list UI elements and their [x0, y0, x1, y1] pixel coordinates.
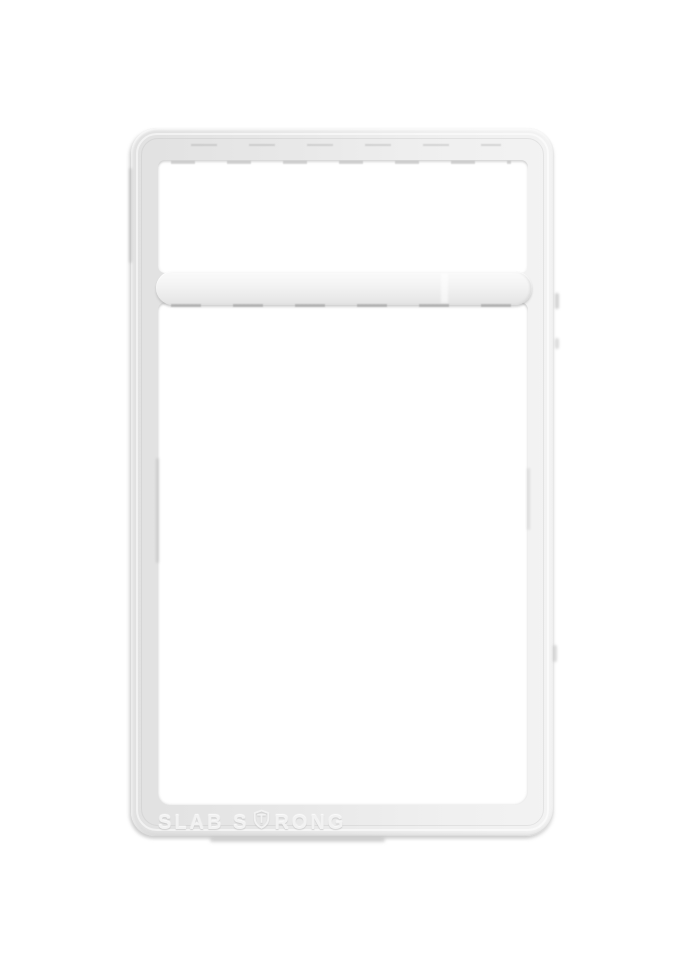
emboss-text-right: RONG	[274, 812, 346, 835]
top-rail-mold-line	[191, 144, 501, 146]
shield-t-icon	[253, 809, 270, 835]
shadow-artifact	[527, 468, 530, 530]
shadow-artifact	[171, 304, 516, 307]
shadow-artifact	[555, 338, 559, 349]
shadow-artifact	[171, 161, 511, 164]
shadow-artifact	[555, 293, 559, 309]
embossed-brand-wordmark: SLAB S RONG	[158, 811, 346, 835]
product-photo-canvas: SLAB S RONG	[0, 0, 695, 960]
divider-mold-seam	[441, 273, 448, 303]
label-window-opening	[158, 160, 528, 273]
shadow-artifact	[156, 458, 159, 563]
divider-bar	[156, 271, 532, 305]
shadow-artifact	[553, 645, 557, 662]
emboss-text-left: SLAB S	[158, 812, 249, 835]
shadow-artifact	[210, 838, 385, 842]
slab-frame: SLAB S RONG	[131, 128, 554, 836]
shadow-artifact	[129, 168, 132, 263]
card-window-opening	[158, 302, 528, 805]
